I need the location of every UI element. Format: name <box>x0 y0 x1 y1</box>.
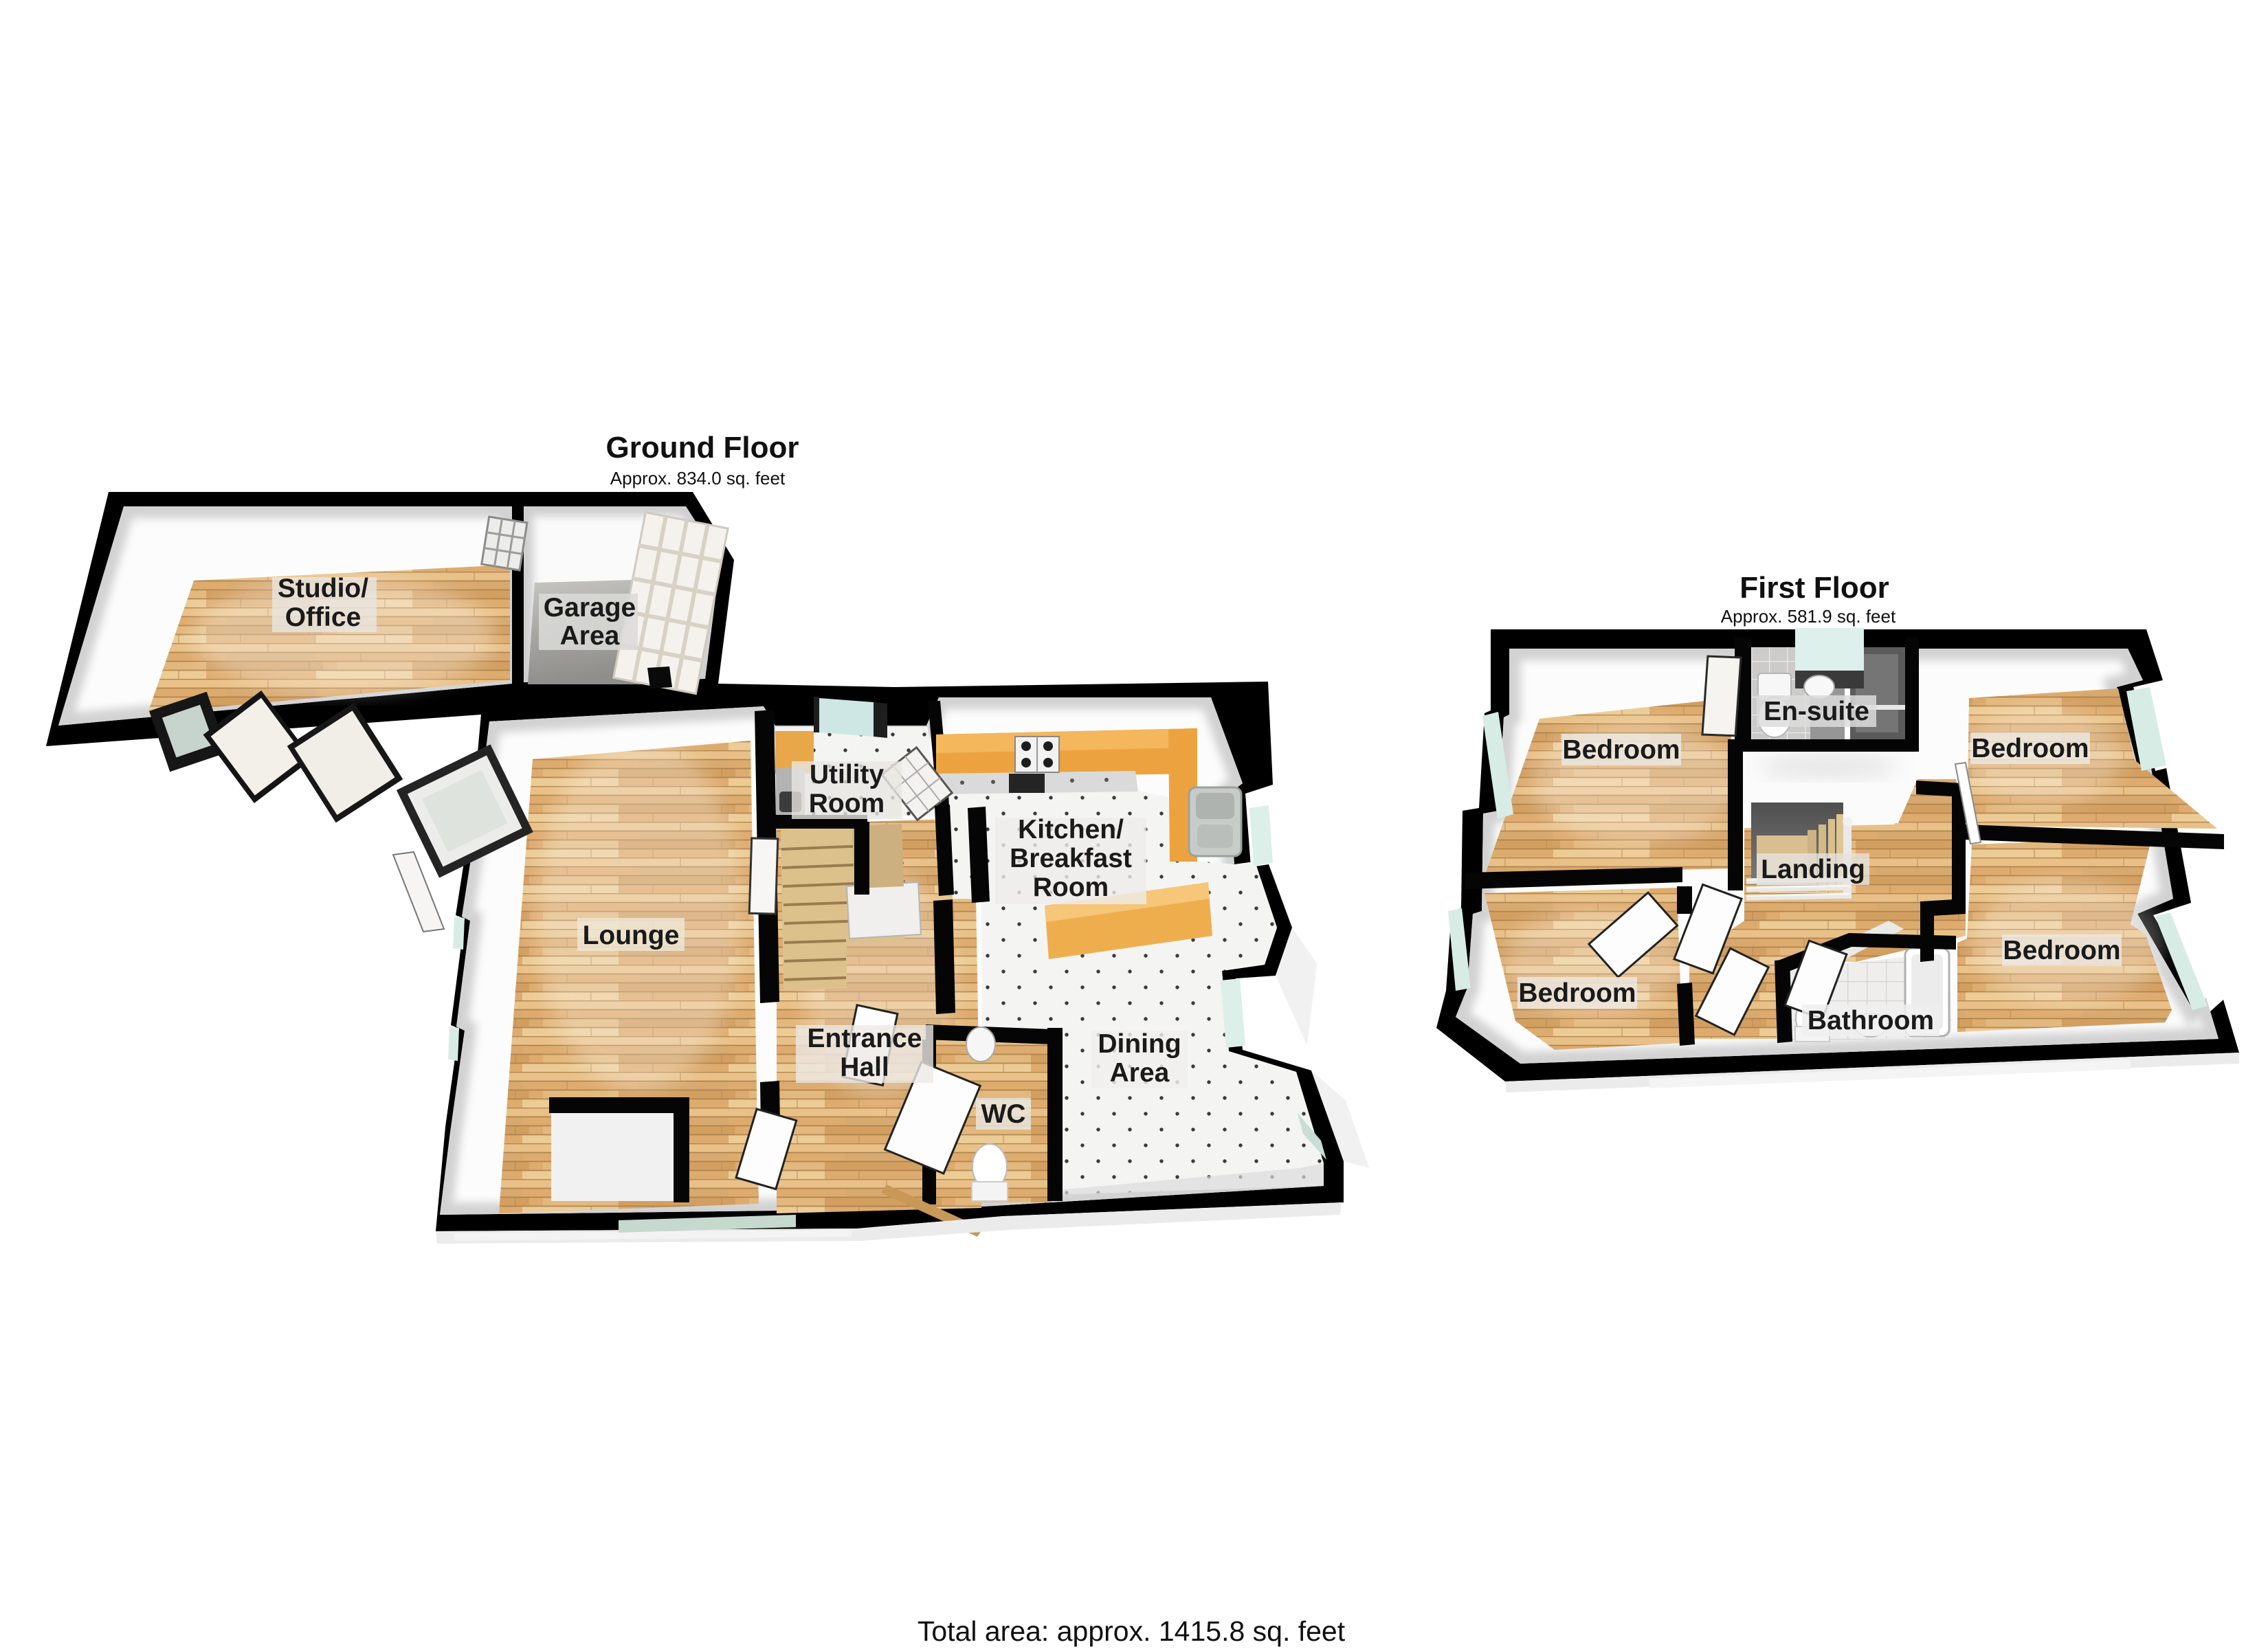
svg-text:Approx. 834.0 sq. feet: Approx. 834.0 sq. feet <box>610 468 786 489</box>
svg-text:First Floor: First Floor <box>1739 571 1889 605</box>
svg-text:Utility: Utility <box>810 760 885 789</box>
svg-text:Bedroom: Bedroom <box>1971 734 2089 763</box>
svg-text:Breakfast: Breakfast <box>1010 844 1132 873</box>
svg-text:Kitchen/: Kitchen/ <box>1018 815 1124 844</box>
svg-text:Hall: Hall <box>840 1053 889 1082</box>
svg-text:Bedroom: Bedroom <box>1518 978 1636 1008</box>
svg-text:Dining: Dining <box>1098 1029 1181 1059</box>
svg-text:Garage: Garage <box>544 593 636 622</box>
svg-text:Lounge: Lounge <box>583 921 680 950</box>
svg-text:Room: Room <box>809 789 885 818</box>
svg-text:Approx. 581.9 sq. feet: Approx. 581.9 sq. feet <box>1721 606 1896 627</box>
svg-text:Landing: Landing <box>1761 855 1865 884</box>
svg-text:Area: Area <box>560 621 620 651</box>
svg-text:Area: Area <box>1110 1058 1170 1088</box>
svg-text:Bathroom: Bathroom <box>1808 1006 1934 1035</box>
svg-text:En-suite: En-suite <box>1764 697 1869 726</box>
svg-text:Studio/: Studio/ <box>278 574 368 603</box>
svg-text:Bedroom: Bedroom <box>2003 936 2120 965</box>
svg-text:Total area: approx. 1415.8 sq.: Total area: approx. 1415.8 sq. feet <box>918 1615 1346 1647</box>
svg-text:Ground Floor: Ground Floor <box>605 431 799 464</box>
svg-text:Bedroom: Bedroom <box>1562 735 1680 765</box>
svg-text:WC: WC <box>981 1099 1026 1129</box>
svg-text:Office: Office <box>285 603 362 632</box>
svg-text:Entrance: Entrance <box>808 1024 922 1053</box>
svg-text:Room: Room <box>1033 873 1109 902</box>
